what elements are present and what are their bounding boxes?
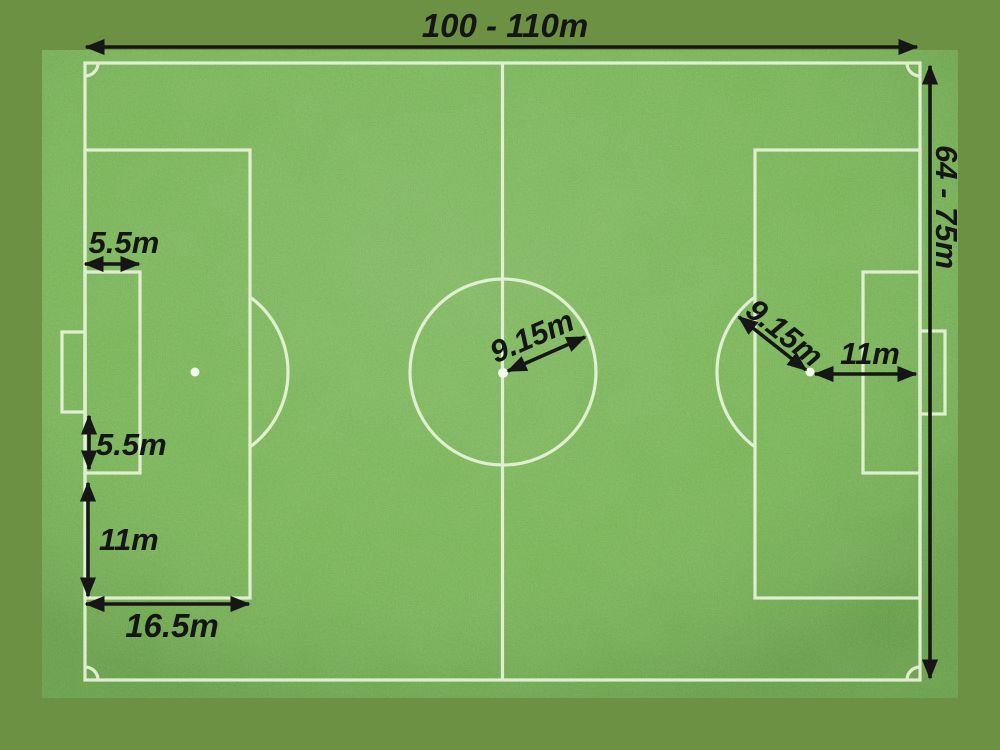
penalty-area-depth-label: 16.5m <box>125 607 219 644</box>
pitch-length-label: 100 - 110m <box>422 7 588 44</box>
penalty-spot-distance-label: 11m <box>840 336 900 371</box>
pitch-diagram: 100 - 110m 64 - 75m 5.5m 5.5m 11m 16.5m … <box>0 0 1000 750</box>
left-penalty-spot <box>191 368 200 377</box>
goal-area-to-penalty-edge-label: 11m <box>99 522 159 557</box>
goal-area-depth-label: 5.5m <box>89 225 160 260</box>
goal-to-goal-area-label: 5.5m <box>96 427 167 462</box>
pitch-width-label: 64 - 75m <box>929 145 964 269</box>
